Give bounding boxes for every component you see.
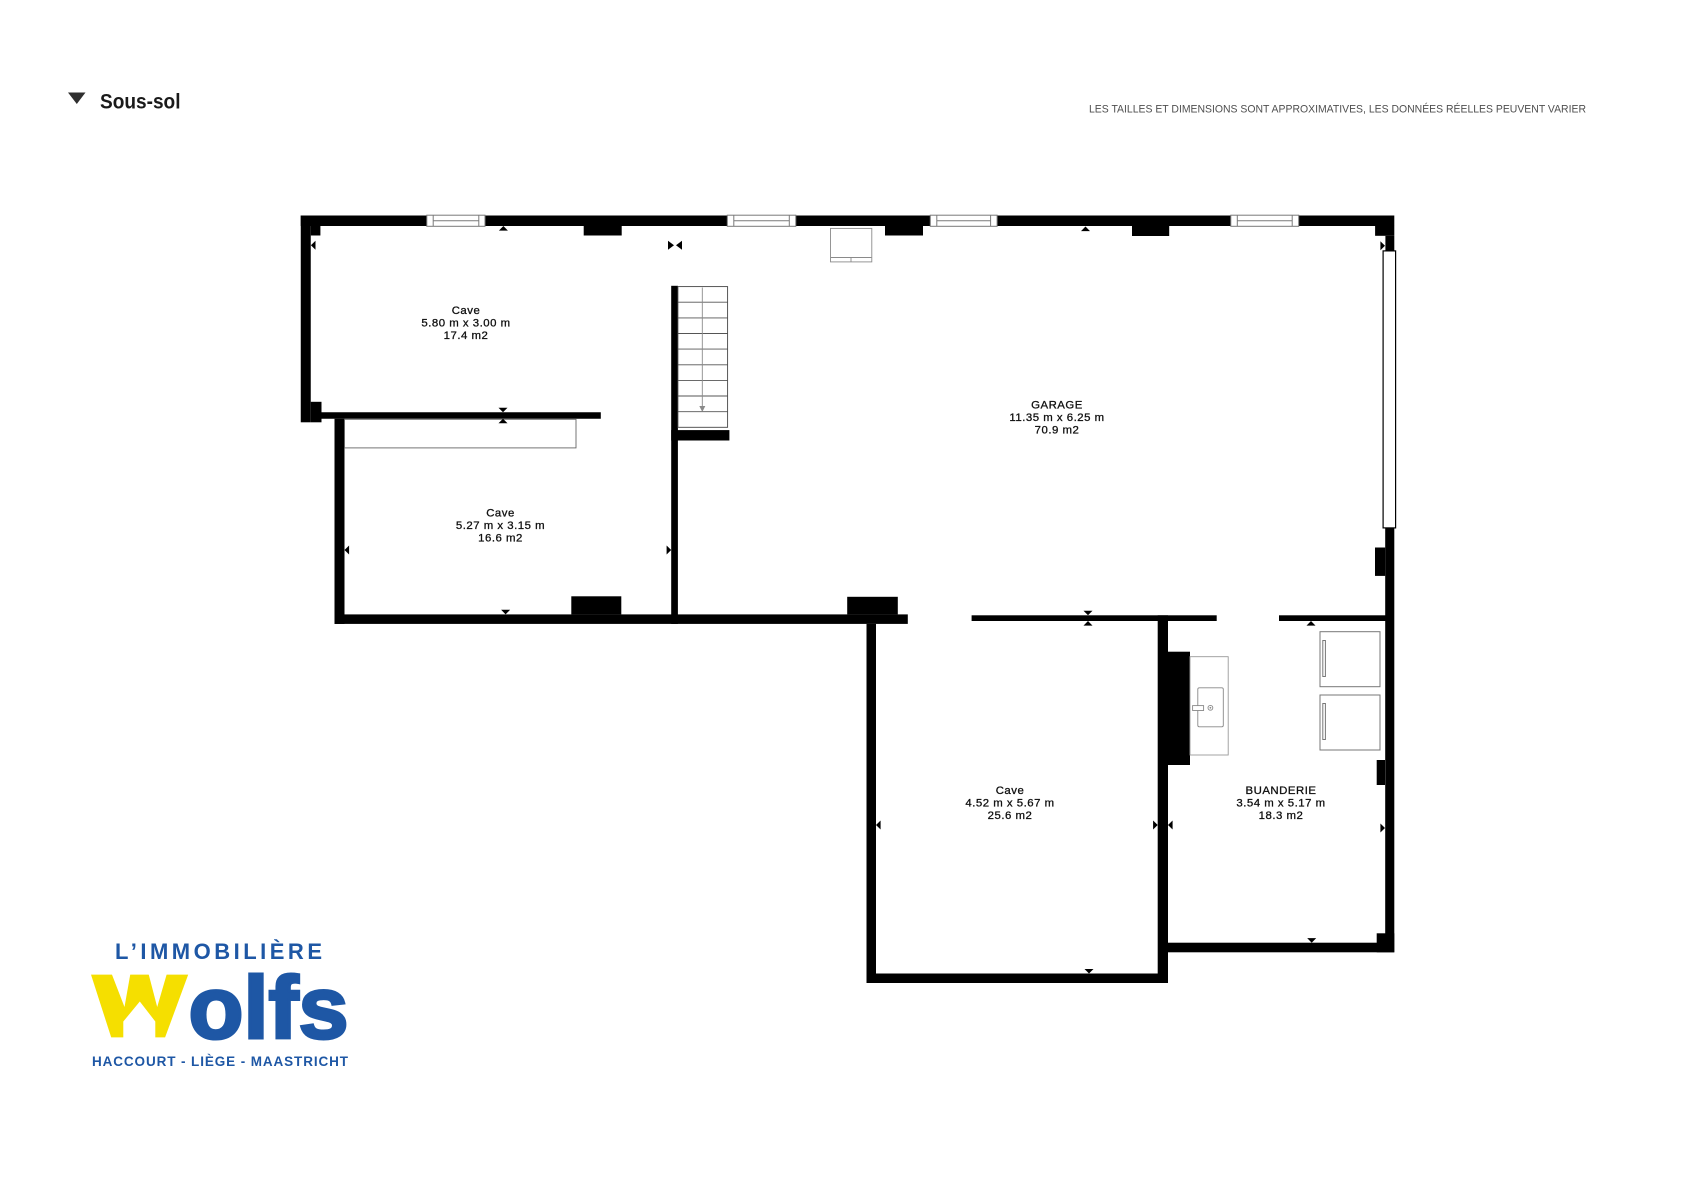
svg-text:5.80 m x 3.00 m: 5.80 m x 3.00 m [421,317,510,329]
svg-text:11.35 m x 6.25 m: 11.35 m x 6.25 m [1009,412,1104,424]
svg-text:Cave: Cave [486,507,515,519]
svg-text:GARAGE: GARAGE [1031,399,1083,411]
svg-text:16.6 m2: 16.6 m2 [478,532,523,544]
svg-text:HACCOURT - LIÈGE - MAASTRICHT: HACCOURT - LIÈGE - MAASTRICHT [92,1054,349,1069]
svg-text:3.54 m x 5.17 m: 3.54 m x 5.17 m [1236,797,1325,809]
svg-text:70.9 m2: 70.9 m2 [1035,425,1080,437]
svg-text:olfs: olfs [189,958,349,1057]
svg-text:Sous-sol: Sous-sol [100,90,181,114]
svg-text:18.3 m2: 18.3 m2 [1259,810,1304,822]
svg-text:Cave: Cave [996,785,1025,797]
svg-text:4.52 m x 5.67 m: 4.52 m x 5.67 m [965,797,1054,809]
svg-text:Cave: Cave [452,305,481,317]
svg-text:BUANDERIE: BUANDERIE [1246,785,1317,797]
svg-text:17.4 m2: 17.4 m2 [444,330,489,342]
svg-text:LES TAILLES ET DIMENSIONS SONT: LES TAILLES ET DIMENSIONS SONT APPROXIMA… [1089,102,1586,115]
svg-text:25.6 m2: 25.6 m2 [988,810,1033,822]
svg-text:5.27 m x 3.15 m: 5.27 m x 3.15 m [456,520,545,532]
